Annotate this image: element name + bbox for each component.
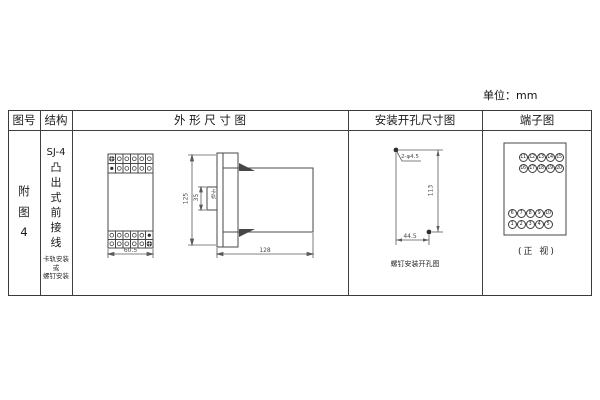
col-divider-4 (482, 110, 483, 296)
terminal-15: 15 (555, 153, 564, 162)
structure-cell: SJ-4 凸 出 式 前 接 线 卡轨安装 或 螺钉安装 (40, 146, 72, 281)
figure-char: 附 (8, 181, 40, 202)
structure-char: 接 (40, 220, 72, 235)
terminal-19: 19 (546, 164, 555, 173)
terminal-6: 6 (508, 209, 517, 218)
terminal-20: 20 (555, 164, 564, 173)
structure-char: 线 (40, 235, 72, 250)
dim-height: 125 (183, 189, 190, 209)
terminal-5: 5 (544, 220, 553, 229)
hole-size-label: 2-φ4.5 (397, 154, 423, 160)
datasheet-page: 单位：mm 图号 结构 外 形 尺 寸 图 安装开孔尺寸图 端子图 附 图 4 … (0, 0, 600, 400)
structure-char: 前 (40, 205, 72, 220)
unit-label: 单位：mm (483, 87, 537, 103)
mount-note-line: 螺钉安装 (40, 272, 72, 281)
terminal-2: 2 (517, 220, 526, 229)
terminal-14: 14 (546, 153, 555, 162)
dim-front-width: 60.5 (113, 247, 148, 254)
terminal-caption: (正 视) (482, 244, 592, 257)
header-mounting: 安装开孔尺寸图 (348, 110, 482, 130)
rail-label: 卡轨 (208, 189, 217, 209)
dim-rail-width: 35 (193, 188, 200, 207)
terminal-16: 16 (519, 164, 528, 173)
terminal-3: 3 (526, 220, 535, 229)
dim-mount-height: 113 (427, 181, 434, 201)
terminal-17: 17 (528, 164, 537, 173)
model-label: SJ-4 (40, 146, 72, 160)
header-outline: 外 形 尺 寸 图 (72, 110, 348, 130)
terminal-8: 8 (526, 209, 535, 218)
terminal-11: 11 (519, 153, 528, 162)
terminal-12: 12 (528, 153, 537, 162)
terminal-13: 13 (537, 153, 546, 162)
structure-char: 式 (40, 190, 72, 205)
structure-char: 出 (40, 175, 72, 190)
header-divider (8, 130, 592, 131)
header-figure-no: 图号 (8, 110, 40, 130)
terminal-7: 7 (517, 209, 526, 218)
figure-number-cell: 附 图 4 (8, 181, 40, 243)
spec-table-frame (8, 110, 592, 296)
mount-note-line: 或 (40, 264, 72, 273)
structure-char: 凸 (40, 160, 72, 175)
figure-char: 4 (8, 222, 40, 243)
col-divider-2 (72, 110, 73, 296)
terminal-10: 10 (544, 209, 553, 218)
header-terminal: 端子图 (482, 110, 592, 130)
mounting-caption: 螺钉安装开孔图 (348, 259, 482, 269)
terminal-18: 18 (537, 164, 546, 173)
terminal-9: 9 (535, 209, 544, 218)
mount-note-line: 卡轨安装 (40, 255, 72, 264)
terminal-1: 1 (508, 220, 517, 229)
dim-depth: 128 (240, 247, 290, 254)
terminal-4: 4 (535, 220, 544, 229)
header-structure: 结构 (40, 110, 72, 130)
figure-char: 图 (8, 202, 40, 223)
dim-mount-width: 44.5 (394, 233, 426, 240)
